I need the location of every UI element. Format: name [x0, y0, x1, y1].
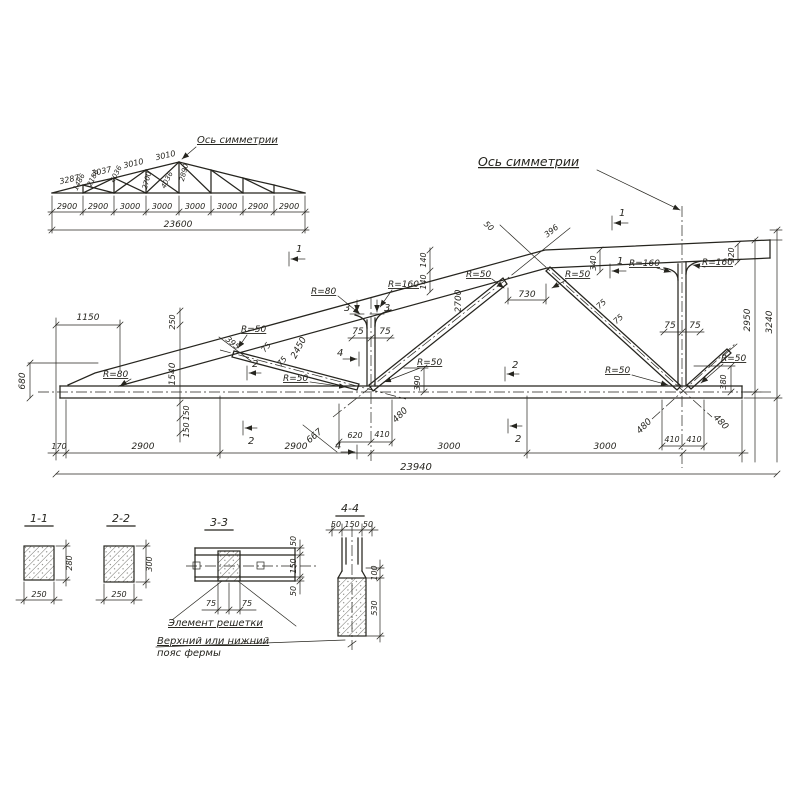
- dim-140: 140: [419, 274, 428, 289]
- dim-75: 75: [206, 599, 216, 608]
- mark-1: 1: [296, 244, 302, 255]
- dim-480-node1: 480: [391, 406, 410, 425]
- ov-panel-dim: 2900: [57, 202, 77, 211]
- radius-label-r80-heel: R=80: [103, 370, 129, 380]
- mark-4: 4: [337, 348, 343, 359]
- ov-web-length: 2890: [178, 162, 190, 182]
- dim-2950: 2950: [743, 308, 753, 331]
- dim-75: 75: [689, 321, 701, 331]
- dim-3000: 3000: [594, 442, 617, 452]
- drawing-canvas: 2900 2900 3000 3000 3000 3000 2900 2900 …: [0, 0, 800, 800]
- dim-320: 320: [727, 247, 736, 262]
- dim-1540: 1540: [168, 362, 178, 385]
- dim-75-d3: 75: [612, 312, 626, 326]
- radius-label-r50-node1: R=50: [283, 374, 309, 384]
- mark-1: 1: [617, 256, 623, 267]
- radius-label-r50-topnode-left: R=50: [466, 270, 492, 280]
- ov-web-length: 4036: [109, 164, 124, 184]
- dim-170: 170: [51, 442, 66, 451]
- mark-4: 4: [335, 441, 341, 452]
- mark-3: 3: [384, 303, 390, 314]
- dim-50: 50: [289, 586, 298, 596]
- dim-140: 140: [419, 252, 428, 267]
- radius-label-r50-d1-top: R=50: [241, 325, 267, 335]
- dim-340: 340: [589, 255, 598, 270]
- section-title: 3-3: [210, 516, 228, 529]
- mark-2: 2: [512, 360, 518, 371]
- note-lattice-element: Элемент решетки: [167, 618, 263, 629]
- dim-2900: 2900: [285, 442, 308, 452]
- dim-50: 50: [289, 536, 298, 546]
- dim-1150: 1150: [77, 313, 100, 323]
- dim-total-23940: 23940: [400, 462, 432, 473]
- ov-panel-dim: 3000: [120, 202, 140, 211]
- dim-3240: 3240: [765, 310, 775, 333]
- ov-total-span: 23600: [164, 220, 193, 230]
- dim-480-node2-right: 480: [711, 413, 730, 432]
- overview-truss: 2900 2900 3000 3000 3000 3000 2900 2900 …: [48, 135, 309, 233]
- mark-3: 3: [344, 303, 350, 314]
- section-width: 250: [111, 590, 126, 599]
- section-marks: 1 1 1 2 2 2 2 3 3 4: [243, 208, 628, 459]
- ov-panel-dim: 3000: [152, 202, 172, 211]
- note-chord-line1: Верхний или нижний: [157, 636, 270, 647]
- radius-label-r160-v1: R=160: [388, 280, 419, 290]
- ov-panel-dim: 2900: [248, 202, 268, 211]
- dim-390: 390: [413, 375, 422, 390]
- ov-panel-dim: 3000: [185, 202, 205, 211]
- radius-label-r50-topnode-right: R=50: [565, 270, 591, 280]
- dim-75-d1: 75: [275, 355, 288, 369]
- section-1-1: 1-1 250 280: [16, 512, 74, 604]
- dim-480-node2-left: 480: [635, 417, 654, 436]
- dim-50: 50: [363, 520, 373, 529]
- dim-410: 410: [374, 430, 389, 439]
- dim-250: 250: [168, 314, 177, 329]
- radius-label-r160-v2-left: R=160: [629, 259, 660, 269]
- dim-667: 667: [305, 427, 325, 446]
- dim-75: 75: [242, 599, 252, 608]
- radius-label-r50-d2-bottom: R=50: [417, 358, 443, 368]
- section-4-4: 4-4 50 150 50 100 530: [326, 502, 384, 650]
- radius-label-r50-d4: R=50: [721, 354, 747, 364]
- note-chord-line2: пояс фермы: [157, 648, 221, 659]
- dim-530: 530: [370, 600, 379, 615]
- dim-75: 75: [379, 327, 391, 337]
- dim-150: 150: [289, 558, 298, 573]
- dim-100: 100: [370, 565, 379, 580]
- radius-label-r80-v1: R=80: [311, 287, 337, 297]
- dim-730: 730: [518, 290, 535, 300]
- dim-150: 150: [182, 405, 191, 420]
- mark-1: 1: [619, 208, 625, 219]
- dim-2450: 2450: [289, 335, 309, 360]
- dim-3000: 3000: [438, 442, 461, 452]
- ov-panel-dim: 2900: [279, 202, 299, 211]
- dim-75: 75: [352, 327, 364, 337]
- dim-380: 380: [719, 374, 728, 389]
- mark-2: 2: [515, 434, 521, 445]
- ov-web-length: 4036: [160, 170, 175, 190]
- section-2-2: 2-2 250 300: [96, 512, 154, 604]
- dim-150: 150: [182, 422, 191, 437]
- ov-panel-dim: 3000: [217, 202, 237, 211]
- radius-label-r50-d3-bottom: R=50: [605, 366, 631, 376]
- main-symmetry-axis-label: Ось симметрии: [478, 154, 579, 169]
- section-title: 4-4: [341, 502, 359, 515]
- ov-symmetry-axis-label: Ось симметрии: [197, 135, 278, 146]
- ov-panel-dim: 2900: [88, 202, 108, 211]
- section-height: 300: [145, 556, 154, 571]
- ov-chord-length: 3010: [123, 157, 145, 170]
- dim-620: 620: [347, 431, 362, 440]
- section-height: 280: [65, 555, 74, 570]
- section-title: 1-1: [30, 512, 48, 525]
- dim-2700: 2700: [454, 289, 464, 312]
- dim-50: 50: [331, 520, 341, 529]
- dim-680: 680: [18, 372, 28, 389]
- dim-50-gap: 50: [482, 219, 496, 233]
- ov-chord-length: 3010: [155, 149, 177, 162]
- dim-75: 75: [664, 321, 676, 331]
- section-width: 250: [31, 590, 46, 599]
- dim-410: 410: [664, 435, 679, 444]
- dim-396: 396: [543, 223, 561, 240]
- dim-75-d1: 75: [259, 341, 272, 355]
- dim-410: 410: [686, 435, 701, 444]
- mark-2: 2: [252, 359, 258, 370]
- truss-drawing-sheet: 2900 2900 3000 3000 3000 3000 2900 2900 …: [0, 0, 800, 800]
- mark-2: 2: [248, 436, 254, 447]
- dim-395: 395: [224, 335, 241, 352]
- dim-2900: 2900: [132, 442, 155, 452]
- section-title: 2-2: [112, 512, 130, 525]
- section-3-3: 3-3 50 150 50 75 75 Элемент решетк: [156, 516, 345, 659]
